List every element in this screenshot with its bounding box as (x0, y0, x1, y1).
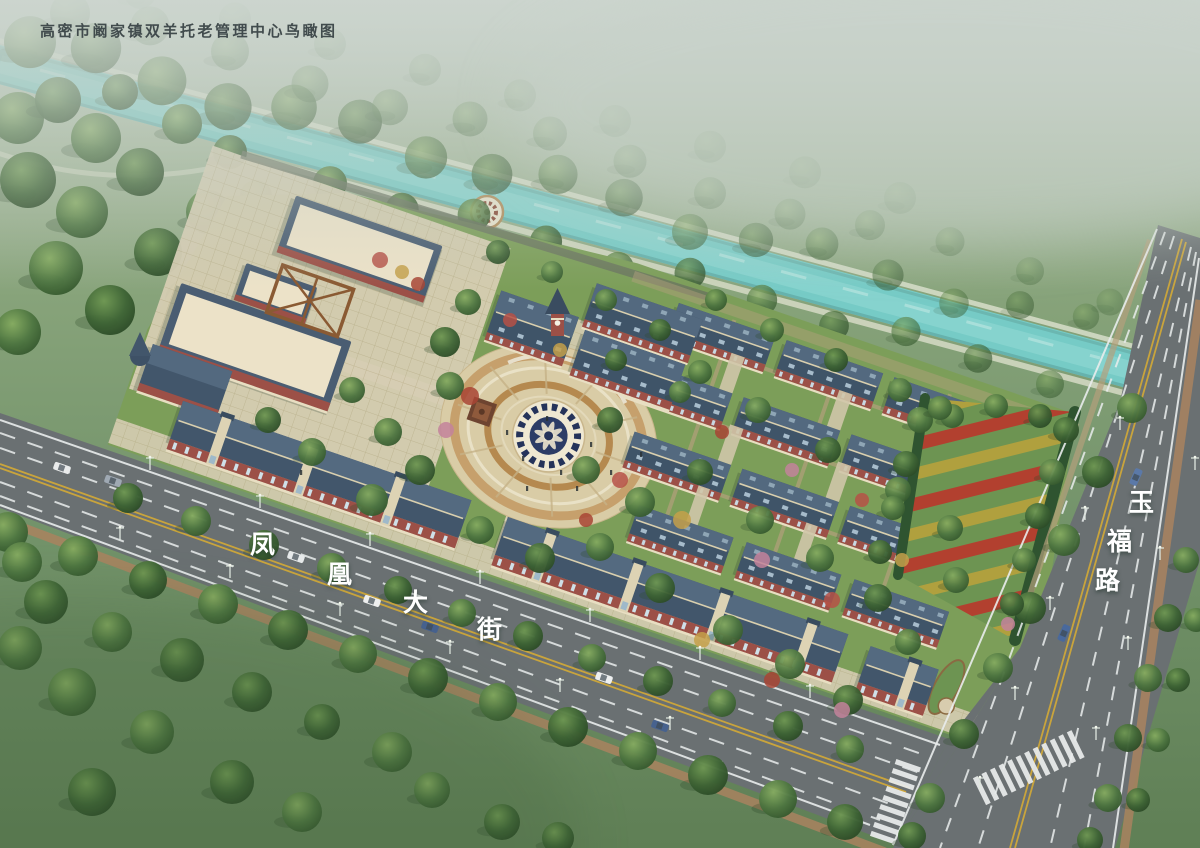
road-label-char: 路 (1095, 568, 1120, 593)
lamp-head (449, 640, 452, 643)
road-label-char: 玉 (1129, 490, 1154, 515)
flower-shrub (764, 672, 780, 688)
flower-shrub (461, 387, 479, 405)
aerial-rendering: 高密市阚家镇双羊托老管理中心鸟瞰图 凤 凰 大 街 玉 福 路 (0, 0, 1200, 848)
road-label-char: 街 (477, 617, 502, 642)
tree (669, 381, 691, 403)
tree (1025, 503, 1051, 529)
tree (1126, 788, 1150, 812)
tree (1012, 548, 1036, 572)
flower-shrub (754, 552, 770, 568)
tree (339, 377, 365, 403)
flower-shrub (715, 425, 729, 439)
tree (466, 516, 494, 544)
lamp-head (259, 494, 262, 497)
lamp-head (229, 564, 232, 567)
lamp-head (589, 608, 592, 611)
tree (806, 544, 834, 572)
tree (983, 653, 1013, 683)
flower-shrub (895, 553, 909, 567)
tree (815, 437, 841, 463)
tree (586, 533, 614, 561)
lamp-head (699, 646, 702, 649)
lamp-head (1159, 546, 1162, 549)
tree (915, 783, 945, 813)
lamp-head (1127, 636, 1130, 639)
tree (298, 438, 326, 466)
tree (255, 407, 281, 433)
pedestrian (560, 470, 562, 475)
tree (775, 649, 805, 679)
tree (455, 289, 481, 315)
pedestrian (300, 470, 302, 475)
tree (939, 288, 969, 318)
lamp-head (1194, 456, 1197, 459)
tree (705, 289, 727, 311)
tree (1028, 404, 1052, 428)
flower-shrub (553, 343, 567, 357)
lamp-head (1049, 596, 1052, 599)
tree (619, 732, 657, 770)
tree (1154, 604, 1182, 632)
flower-shrub (824, 592, 840, 608)
tree (1134, 664, 1162, 692)
road-label-char: 凰 (327, 562, 352, 587)
lamp-head (669, 716, 672, 719)
tree (548, 707, 588, 747)
lamp-head (809, 684, 812, 687)
tree (688, 755, 728, 795)
flower-shrub (785, 463, 799, 477)
tree (649, 319, 671, 341)
tree (964, 344, 993, 373)
tree (895, 629, 921, 655)
lamp-head (1095, 726, 1098, 729)
lamp-head (369, 532, 372, 535)
tree (836, 735, 864, 763)
tree (937, 515, 963, 541)
flower-shrub (612, 472, 628, 488)
lamp-head (1014, 686, 1017, 689)
flower-shrub (834, 702, 850, 718)
tree (430, 327, 460, 357)
tree (58, 536, 98, 576)
tree (745, 397, 771, 423)
tree (827, 804, 863, 840)
pedestrian (640, 452, 642, 457)
flower-shrub (438, 422, 454, 438)
tree (824, 348, 848, 372)
tree (1006, 291, 1034, 319)
tree (888, 378, 912, 402)
tower-clock (555, 320, 561, 326)
tree (1000, 592, 1024, 616)
pedestrian (522, 456, 524, 461)
lamp-head (479, 570, 482, 573)
tower-trim (551, 318, 564, 320)
lamp-head (119, 526, 122, 529)
lamp-head (1084, 506, 1087, 509)
tree (2, 542, 42, 582)
pedestrian (576, 486, 578, 491)
tree (713, 615, 743, 645)
tree (1166, 668, 1190, 692)
tree (1146, 728, 1170, 752)
pedestrian (506, 430, 508, 435)
lamp-head (149, 456, 152, 459)
flower-shrub (579, 513, 593, 527)
tree (513, 621, 543, 651)
tree (605, 349, 627, 371)
tree (687, 459, 713, 485)
tree (1048, 524, 1080, 556)
tree (760, 318, 784, 342)
road-label-char: 凤 (250, 532, 275, 557)
tree (891, 317, 920, 346)
tree (759, 780, 797, 818)
tree (943, 567, 969, 593)
page-title: 高密市阚家镇双羊托老管理中心鸟瞰图 (40, 20, 338, 41)
tree (1036, 370, 1064, 398)
tree (1114, 724, 1142, 752)
tree (645, 573, 675, 603)
tree (746, 506, 774, 534)
road-label-char: 大 (403, 590, 428, 615)
tree (893, 451, 919, 477)
tree (688, 360, 712, 384)
flower-shrub (673, 511, 691, 529)
tree (773, 711, 803, 741)
tree (984, 394, 1008, 418)
tree (864, 584, 892, 612)
pedestrian (610, 470, 612, 475)
pedestrian (590, 442, 592, 447)
tree (129, 561, 167, 599)
flower-shrub (855, 493, 869, 507)
lamp-head (339, 602, 342, 605)
tree (595, 289, 617, 311)
tree (374, 418, 402, 446)
road-label-char: 福 (1107, 529, 1132, 554)
flower-shrub (694, 632, 710, 648)
tree (881, 496, 905, 520)
tree (1097, 289, 1124, 316)
tree (625, 487, 655, 517)
tree (85, 285, 135, 335)
lamp-head (1119, 416, 1122, 419)
pedestrian (526, 486, 528, 491)
lamp-head (559, 678, 562, 681)
tree (405, 455, 435, 485)
tree (1094, 784, 1122, 812)
flower-shrub (503, 313, 517, 327)
tree (436, 372, 464, 400)
tree (643, 666, 673, 696)
scene-canvas (0, 0, 1200, 848)
pedestrian (546, 416, 548, 421)
tree (949, 719, 979, 749)
tree (928, 396, 952, 420)
tree (1173, 547, 1199, 573)
tree (1039, 459, 1065, 485)
tree (572, 456, 600, 484)
tree (578, 644, 606, 672)
tree (525, 543, 555, 573)
tree (708, 689, 736, 717)
flower-shrub (1001, 617, 1015, 631)
tree (181, 506, 211, 536)
tree (1082, 456, 1114, 488)
tree (1053, 417, 1079, 443)
tree (113, 483, 143, 513)
tree (597, 407, 623, 433)
tree (356, 484, 388, 516)
tree (868, 540, 892, 564)
tree (448, 599, 476, 627)
lamp-head (979, 776, 982, 779)
